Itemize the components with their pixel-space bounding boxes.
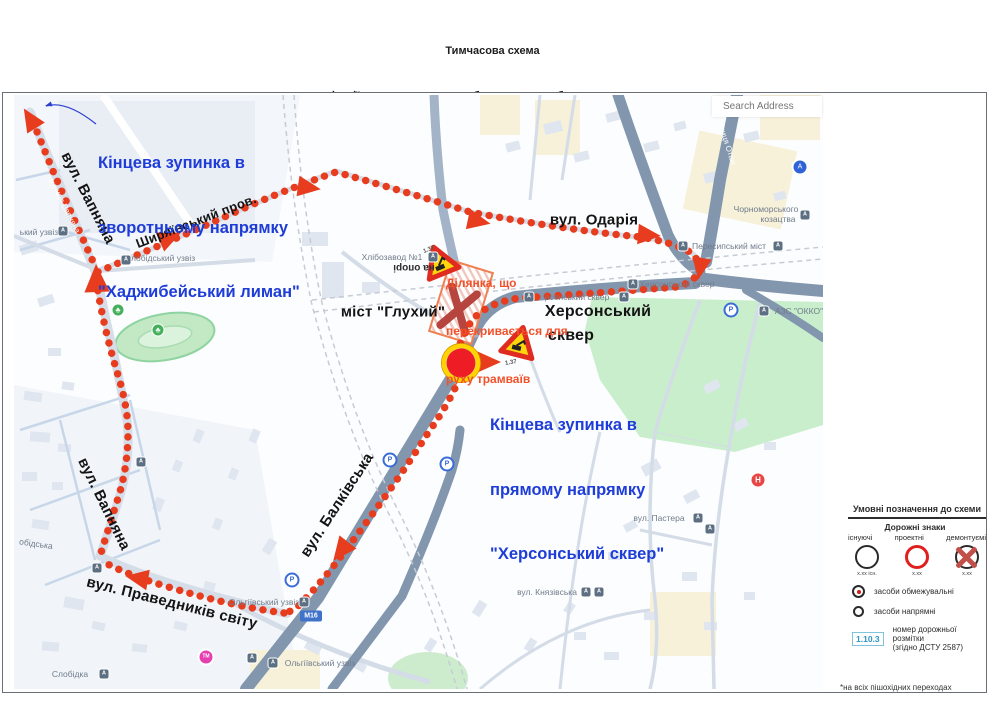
- hospital-icon: Н: [750, 472, 767, 489]
- transit-stop-icon: А: [99, 669, 110, 680]
- map-label: Херсонський сквер: [640, 280, 715, 289]
- transit-stop-icon: А: [693, 513, 704, 524]
- legend-col-existing: існуючі: [848, 533, 872, 542]
- route-shield-m16: М16: [300, 611, 322, 622]
- sign-removed-icon: [955, 545, 979, 569]
- transit-stop-icon: А: [759, 306, 770, 317]
- map-label: Хлібозавод №1: [362, 253, 423, 262]
- bus-station-icon: А: [792, 159, 809, 176]
- map-label: АЗС "ОККО": [775, 307, 823, 316]
- transit-stop-icon: А: [92, 563, 103, 574]
- transit-stop-icon: А: [628, 279, 639, 290]
- map-label: Пересипський міст: [692, 242, 766, 251]
- map-label: Ольгіївський узвіз: [229, 598, 299, 607]
- legend-col-planned: проектні: [895, 533, 924, 542]
- transit-stop-icon: А: [268, 658, 279, 669]
- transit-stop-icon: А: [773, 241, 784, 252]
- search-input[interactable]: [712, 96, 822, 117]
- parking-icon: Р: [440, 457, 455, 472]
- annotation-reverse-terminal: Кінцева зупинка в зворотньому напрямку "…: [98, 110, 300, 347]
- transit-stop-icon: А: [705, 524, 716, 535]
- annotation-closed-section: Ділянка, що перекривається для руху трам…: [446, 243, 568, 419]
- transit-stop-icon: А: [678, 241, 689, 252]
- legend-footnote: *на всіх пішохідних переходах облаштуват…: [840, 662, 990, 706]
- parking-icon: Р: [383, 453, 398, 468]
- legend-row-guide: засоби напрямні: [874, 607, 936, 616]
- marking-code-badge: 1.10.3: [852, 632, 884, 646]
- guiding-means-icon: [853, 606, 864, 617]
- map-label: Ольгіївський узвіз: [285, 659, 355, 668]
- street-label-odariia: вул. Одарія: [550, 213, 638, 228]
- parking-icon: Р: [724, 303, 739, 318]
- legend-title: Умовні позначення до схеми: [848, 504, 986, 519]
- map-label: Чорноморського: [734, 205, 799, 214]
- transit-stop-icon: А: [136, 457, 147, 468]
- search-box: [712, 96, 822, 117]
- title-line: Тимчасова схема: [0, 44, 985, 59]
- sign-existing-icon: [855, 545, 879, 569]
- scheme-page: Тимчасова схема організації дорожнього р…: [0, 0, 1000, 706]
- transit-stop-icon: А: [428, 252, 439, 263]
- transit-stop-icon: А: [58, 226, 69, 237]
- legend-signs-group: Дорожні знаки: [840, 522, 990, 532]
- transit-stop-icon: А: [619, 292, 630, 303]
- map-label: ький узвіз: [20, 228, 58, 237]
- restrictive-means-icon: [852, 585, 865, 598]
- transit-stop-icon: А: [247, 653, 258, 664]
- map-label: козацтва: [761, 215, 796, 224]
- legend: Умовні позначення до схеми Дорожні знаки…: [840, 504, 990, 706]
- sign-planned-icon: [905, 545, 929, 569]
- legend-row-restrict: засоби обмежувальні: [874, 587, 954, 596]
- poi-icon: ТМ: [198, 649, 215, 666]
- map-label: Слобідка: [52, 670, 88, 679]
- transit-stop-icon: А: [800, 210, 811, 221]
- sign-note-on-support: на опорі: [393, 262, 435, 272]
- label-mist-hlukhyi: міст "Глухий": [341, 305, 445, 320]
- transit-stop-icon: А: [299, 597, 310, 608]
- legend-col-removed: демонтуємі: [946, 533, 986, 542]
- parking-icon: Р: [285, 573, 300, 588]
